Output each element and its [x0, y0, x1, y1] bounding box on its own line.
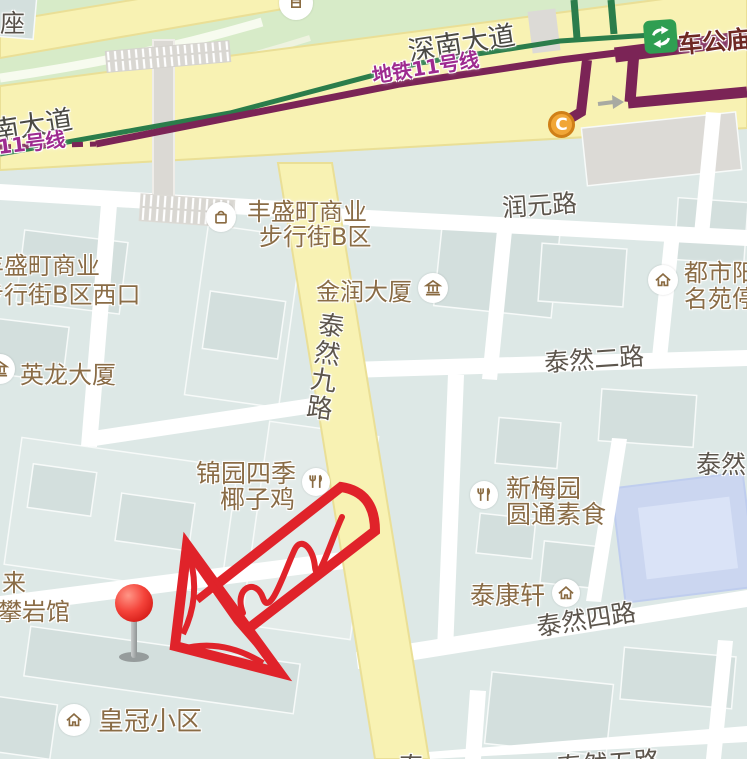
home-icon[interactable]: [648, 265, 678, 295]
restaurant-icon[interactable]: [470, 481, 498, 509]
pin-marker-stem: [131, 616, 137, 658]
pin-marker[interactable]: [115, 584, 153, 622]
metro-line-green-branch: [611, 0, 614, 34]
restaurant-icon[interactable]: [302, 468, 330, 496]
map-canvas[interactable]: 座 南大道 地铁11号线 深南大道 地铁11号线 车公庙 润元路 丰盛町商业 步…: [0, 0, 747, 759]
map-base-layer: [0, 0, 747, 759]
metro-line-green-branch: [574, 0, 577, 38]
metro-transfer-icon[interactable]: [643, 19, 678, 54]
metro-exit-c-marker[interactable]: C: [548, 111, 575, 138]
shopping-bag-icon[interactable]: [206, 202, 236, 232]
direction-arrow-icon: [598, 102, 614, 104]
metro-station-branch: [630, 52, 634, 102]
home-icon[interactable]: [58, 704, 90, 736]
home-icon[interactable]: [552, 579, 580, 607]
bank-building-icon[interactable]: [418, 273, 448, 303]
blue-building: [612, 472, 747, 602]
